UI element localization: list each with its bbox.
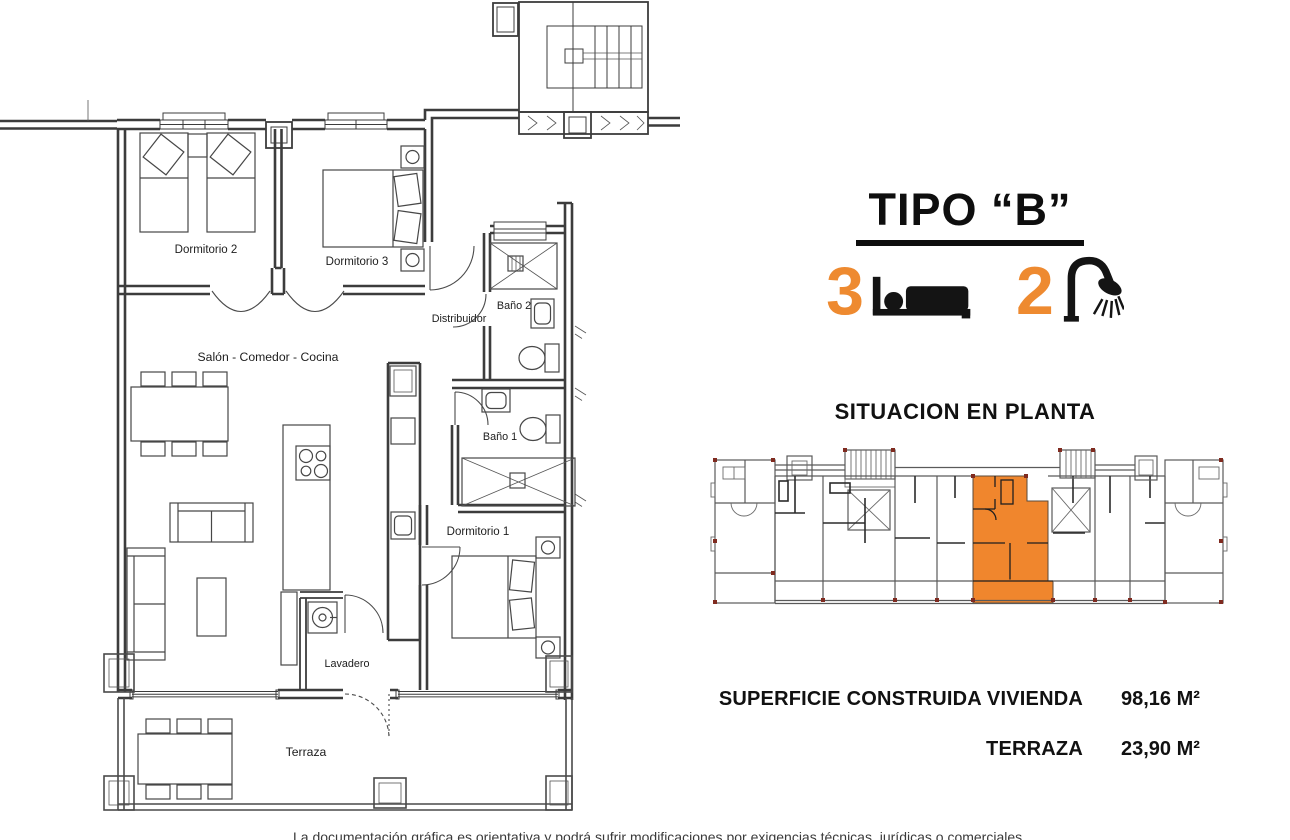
room-label-lavadero: Lavadero	[324, 658, 369, 670]
room-labels: Dormitorio 2 Dormitorio 3 Baño 2 Distrib…	[175, 244, 531, 759]
area-value-terraza: 23,90 M²	[1121, 738, 1257, 761]
room-label-dormitorio-3: Dormitorio 3	[326, 256, 389, 268]
shower-icon	[1062, 248, 1124, 322]
bedroom3-furniture	[323, 146, 424, 271]
area-label-terraza: TERRAZA	[705, 738, 1083, 761]
room-label-salon-comedor-cocina: Salón - Comedor - Cocina	[198, 350, 339, 364]
room-label-dormitorio-1: Dormitorio 1	[447, 526, 510, 538]
highlighted-unit-tipo-b	[973, 476, 1053, 603]
page: Dormitorio 2 Dormitorio 3 Baño 2 Distrib…	[0, 0, 1290, 840]
room-label-bano-2: Baño 2	[497, 300, 531, 312]
sheet-title-wrap: TIPO “B”	[760, 184, 1180, 246]
situation-building	[711, 450, 1227, 604]
situation-plan	[705, 443, 1260, 615]
window-dormitorio2	[160, 113, 228, 129]
area-row-vivienda: SUPERFICIE CONSTRUIDA VIVIENDA 98,16 M²	[705, 688, 1257, 711]
laundry-fixtures	[308, 602, 337, 633]
area-row-terraza: TERRAZA 23,90 M²	[705, 738, 1257, 761]
bathrooms-count: 2	[1016, 260, 1054, 322]
surface-areas: SUPERFICIE CONSTRUIDA VIVIENDA 98,16 M² …	[705, 688, 1257, 761]
situation-title: SITUACION EN PLANTA	[705, 399, 1225, 425]
apartment-floor-plan: Dormitorio 2 Dormitorio 3 Baño 2 Distrib…	[0, 0, 690, 840]
window-dormitorio3	[325, 113, 387, 129]
terrace-glazing	[130, 690, 559, 699]
bed-icon	[870, 262, 974, 320]
bedroom1-furniture	[452, 537, 560, 658]
room-label-bano-1: Baño 1	[483, 431, 517, 443]
service-wall-fixtures	[390, 366, 416, 539]
area-label-vivienda: SUPERFICIE CONSTRUIDA VIVIENDA	[705, 688, 1083, 711]
window-bano2	[494, 222, 546, 240]
sheet-title: TIPO “B”	[856, 184, 1083, 246]
feature-counts: 3 2	[795, 246, 1155, 322]
bedroom2-furniture	[140, 133, 255, 232]
vent-shaft-box	[266, 122, 292, 148]
stair-core	[493, 2, 680, 138]
terrace-structure	[104, 654, 572, 810]
bedrooms-count: 3	[826, 260, 864, 322]
area-value-vivienda: 98,16 M²	[1121, 688, 1257, 711]
room-label-distribuidor: Distribuidor	[432, 313, 487, 325]
room-label-dormitorio-2: Dormitorio 2	[175, 244, 238, 256]
room-label-terraza: Terraza	[286, 745, 327, 759]
footer-disclaimer-clipped: La documentación gráfica es orientativa …	[293, 829, 1053, 840]
plan-walls	[0, 100, 586, 700]
bathroom1-fixtures	[462, 389, 575, 506]
